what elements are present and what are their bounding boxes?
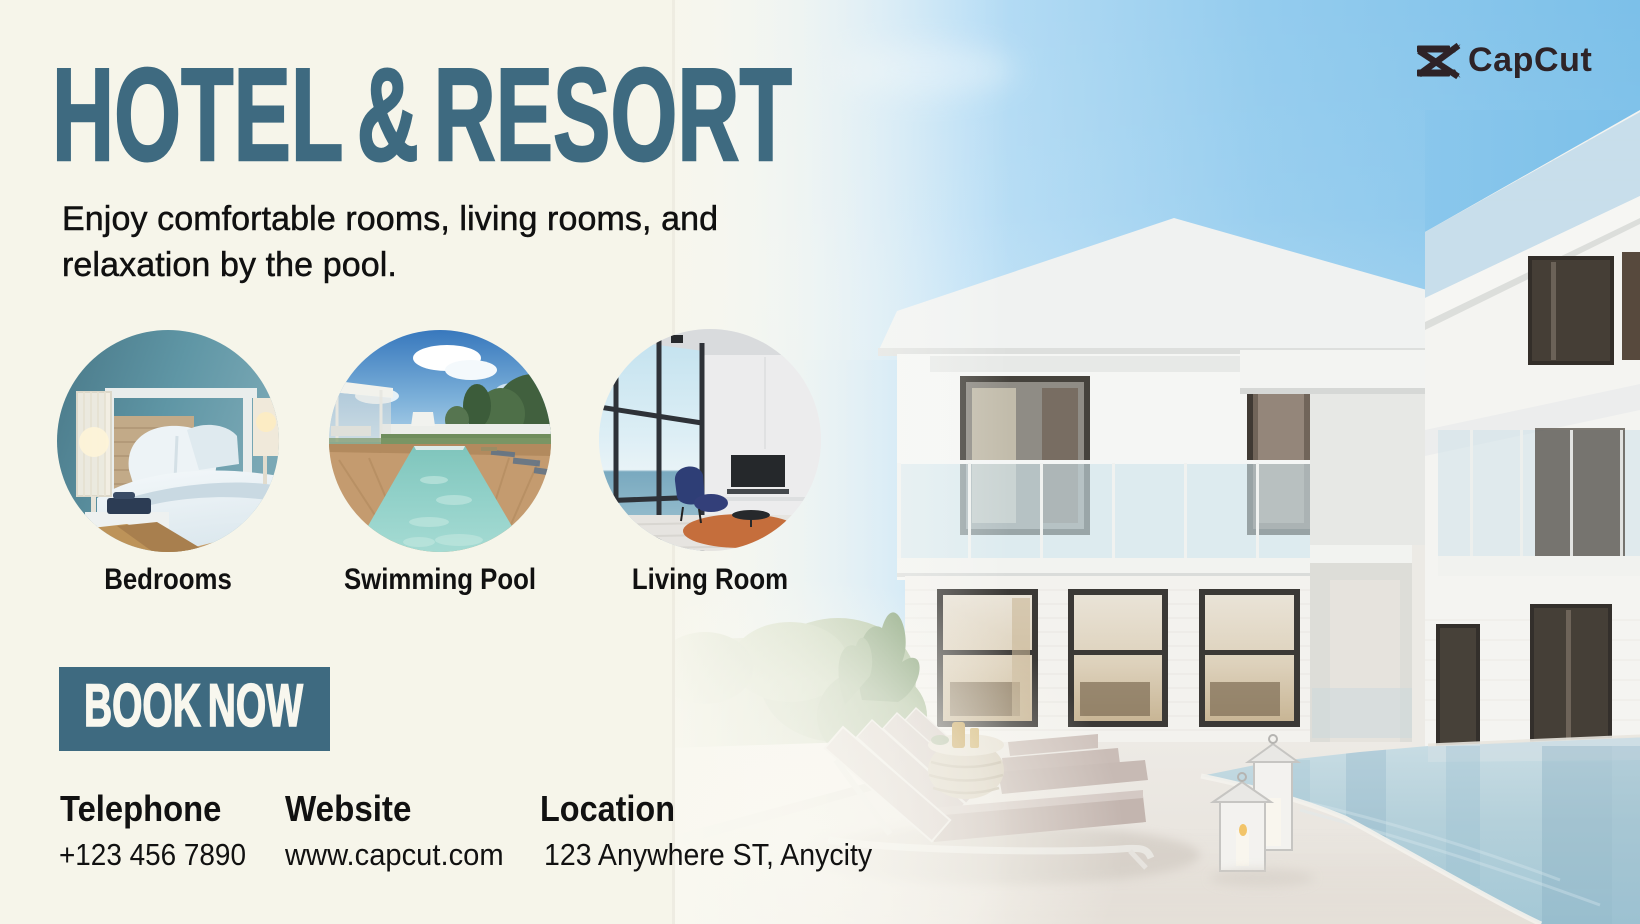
svg-text:HOTEL & RESORT: HOTEL & RESORT — [52, 41, 792, 188]
svg-text:CapCut: CapCut — [1468, 41, 1592, 79]
svg-text:BOOK NOW: BOOK NOW — [84, 672, 303, 739]
